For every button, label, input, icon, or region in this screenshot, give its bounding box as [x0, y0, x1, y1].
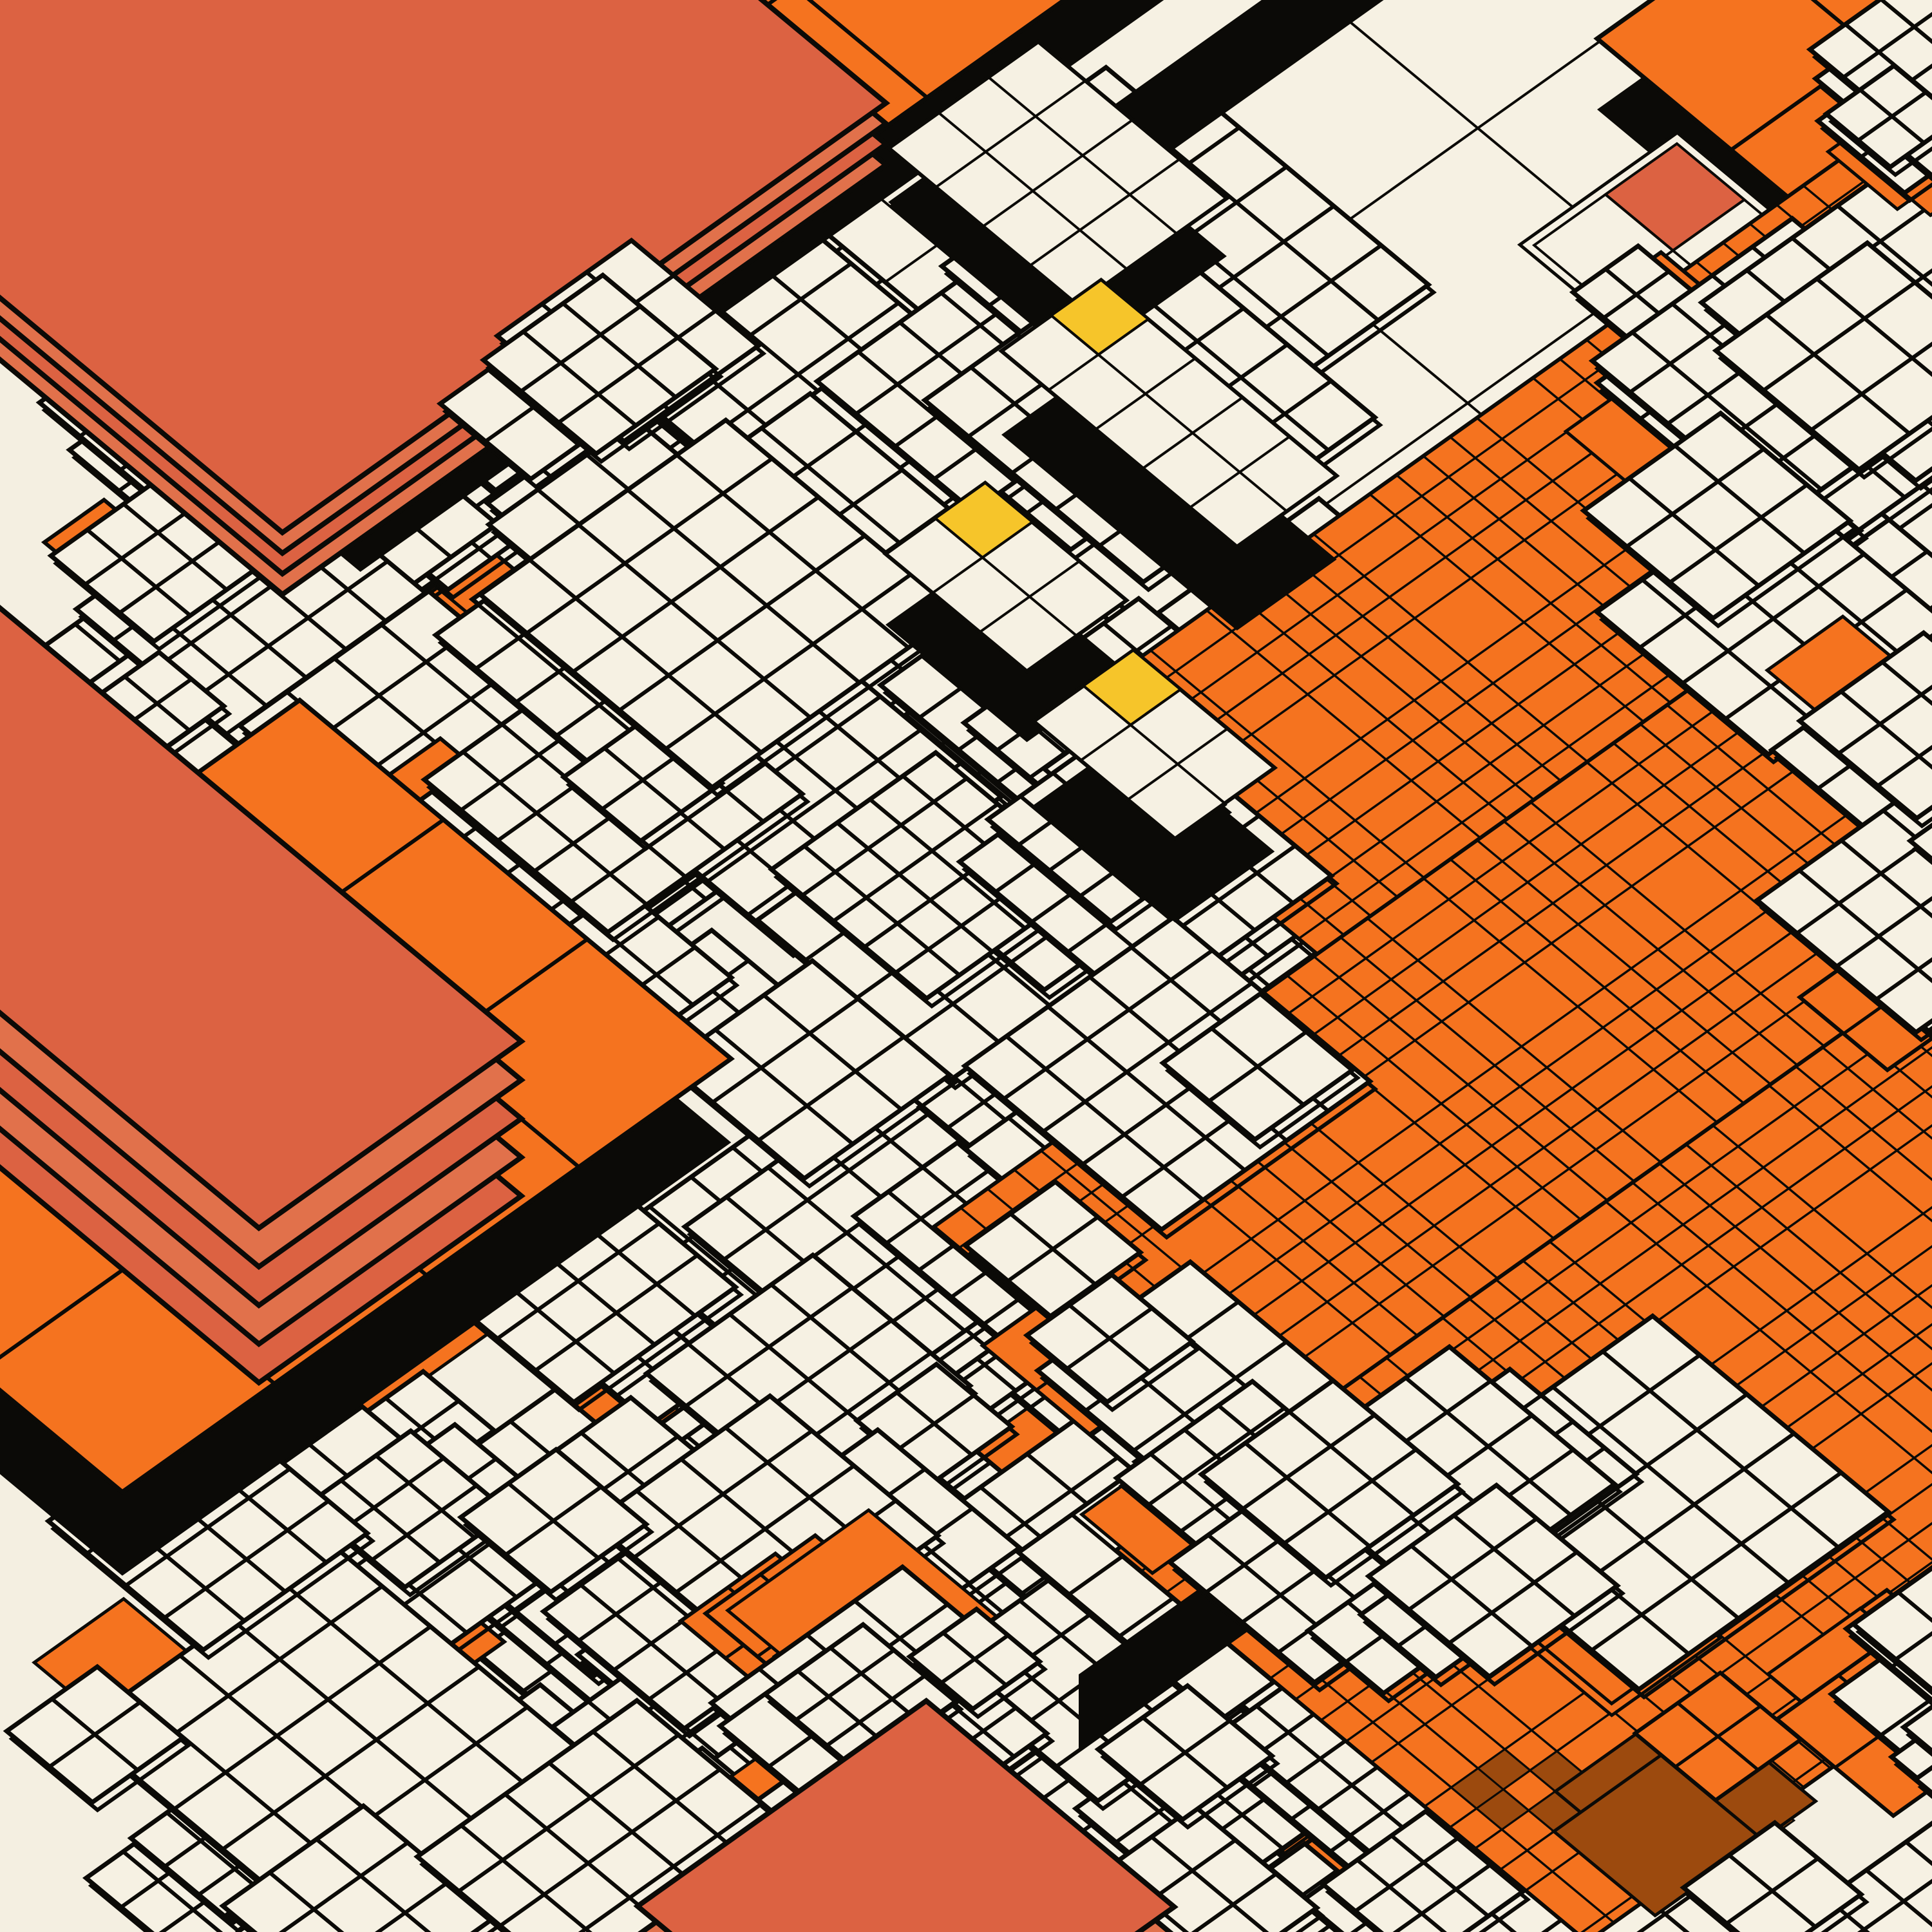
generative-artwork	[0, 0, 1932, 1932]
artwork-stage	[0, 0, 1932, 1932]
